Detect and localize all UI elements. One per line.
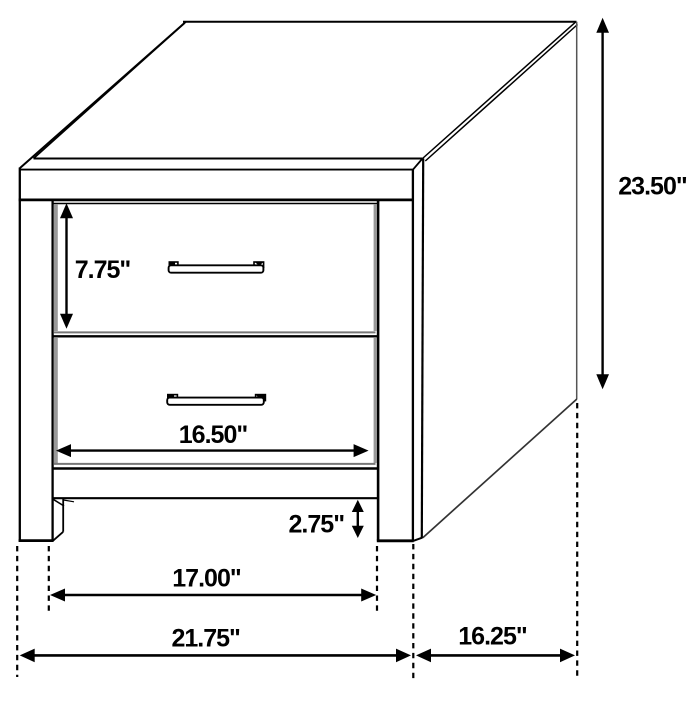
svg-text:16.50": 16.50": [179, 421, 248, 449]
svg-text:16.25": 16.25": [458, 623, 527, 651]
svg-text:17.00": 17.00": [172, 565, 241, 593]
svg-text:23.50": 23.50": [618, 173, 687, 201]
svg-text:2.75": 2.75": [289, 511, 345, 539]
svg-text:21.75": 21.75": [171, 625, 240, 653]
svg-text:7.75": 7.75": [75, 256, 131, 284]
